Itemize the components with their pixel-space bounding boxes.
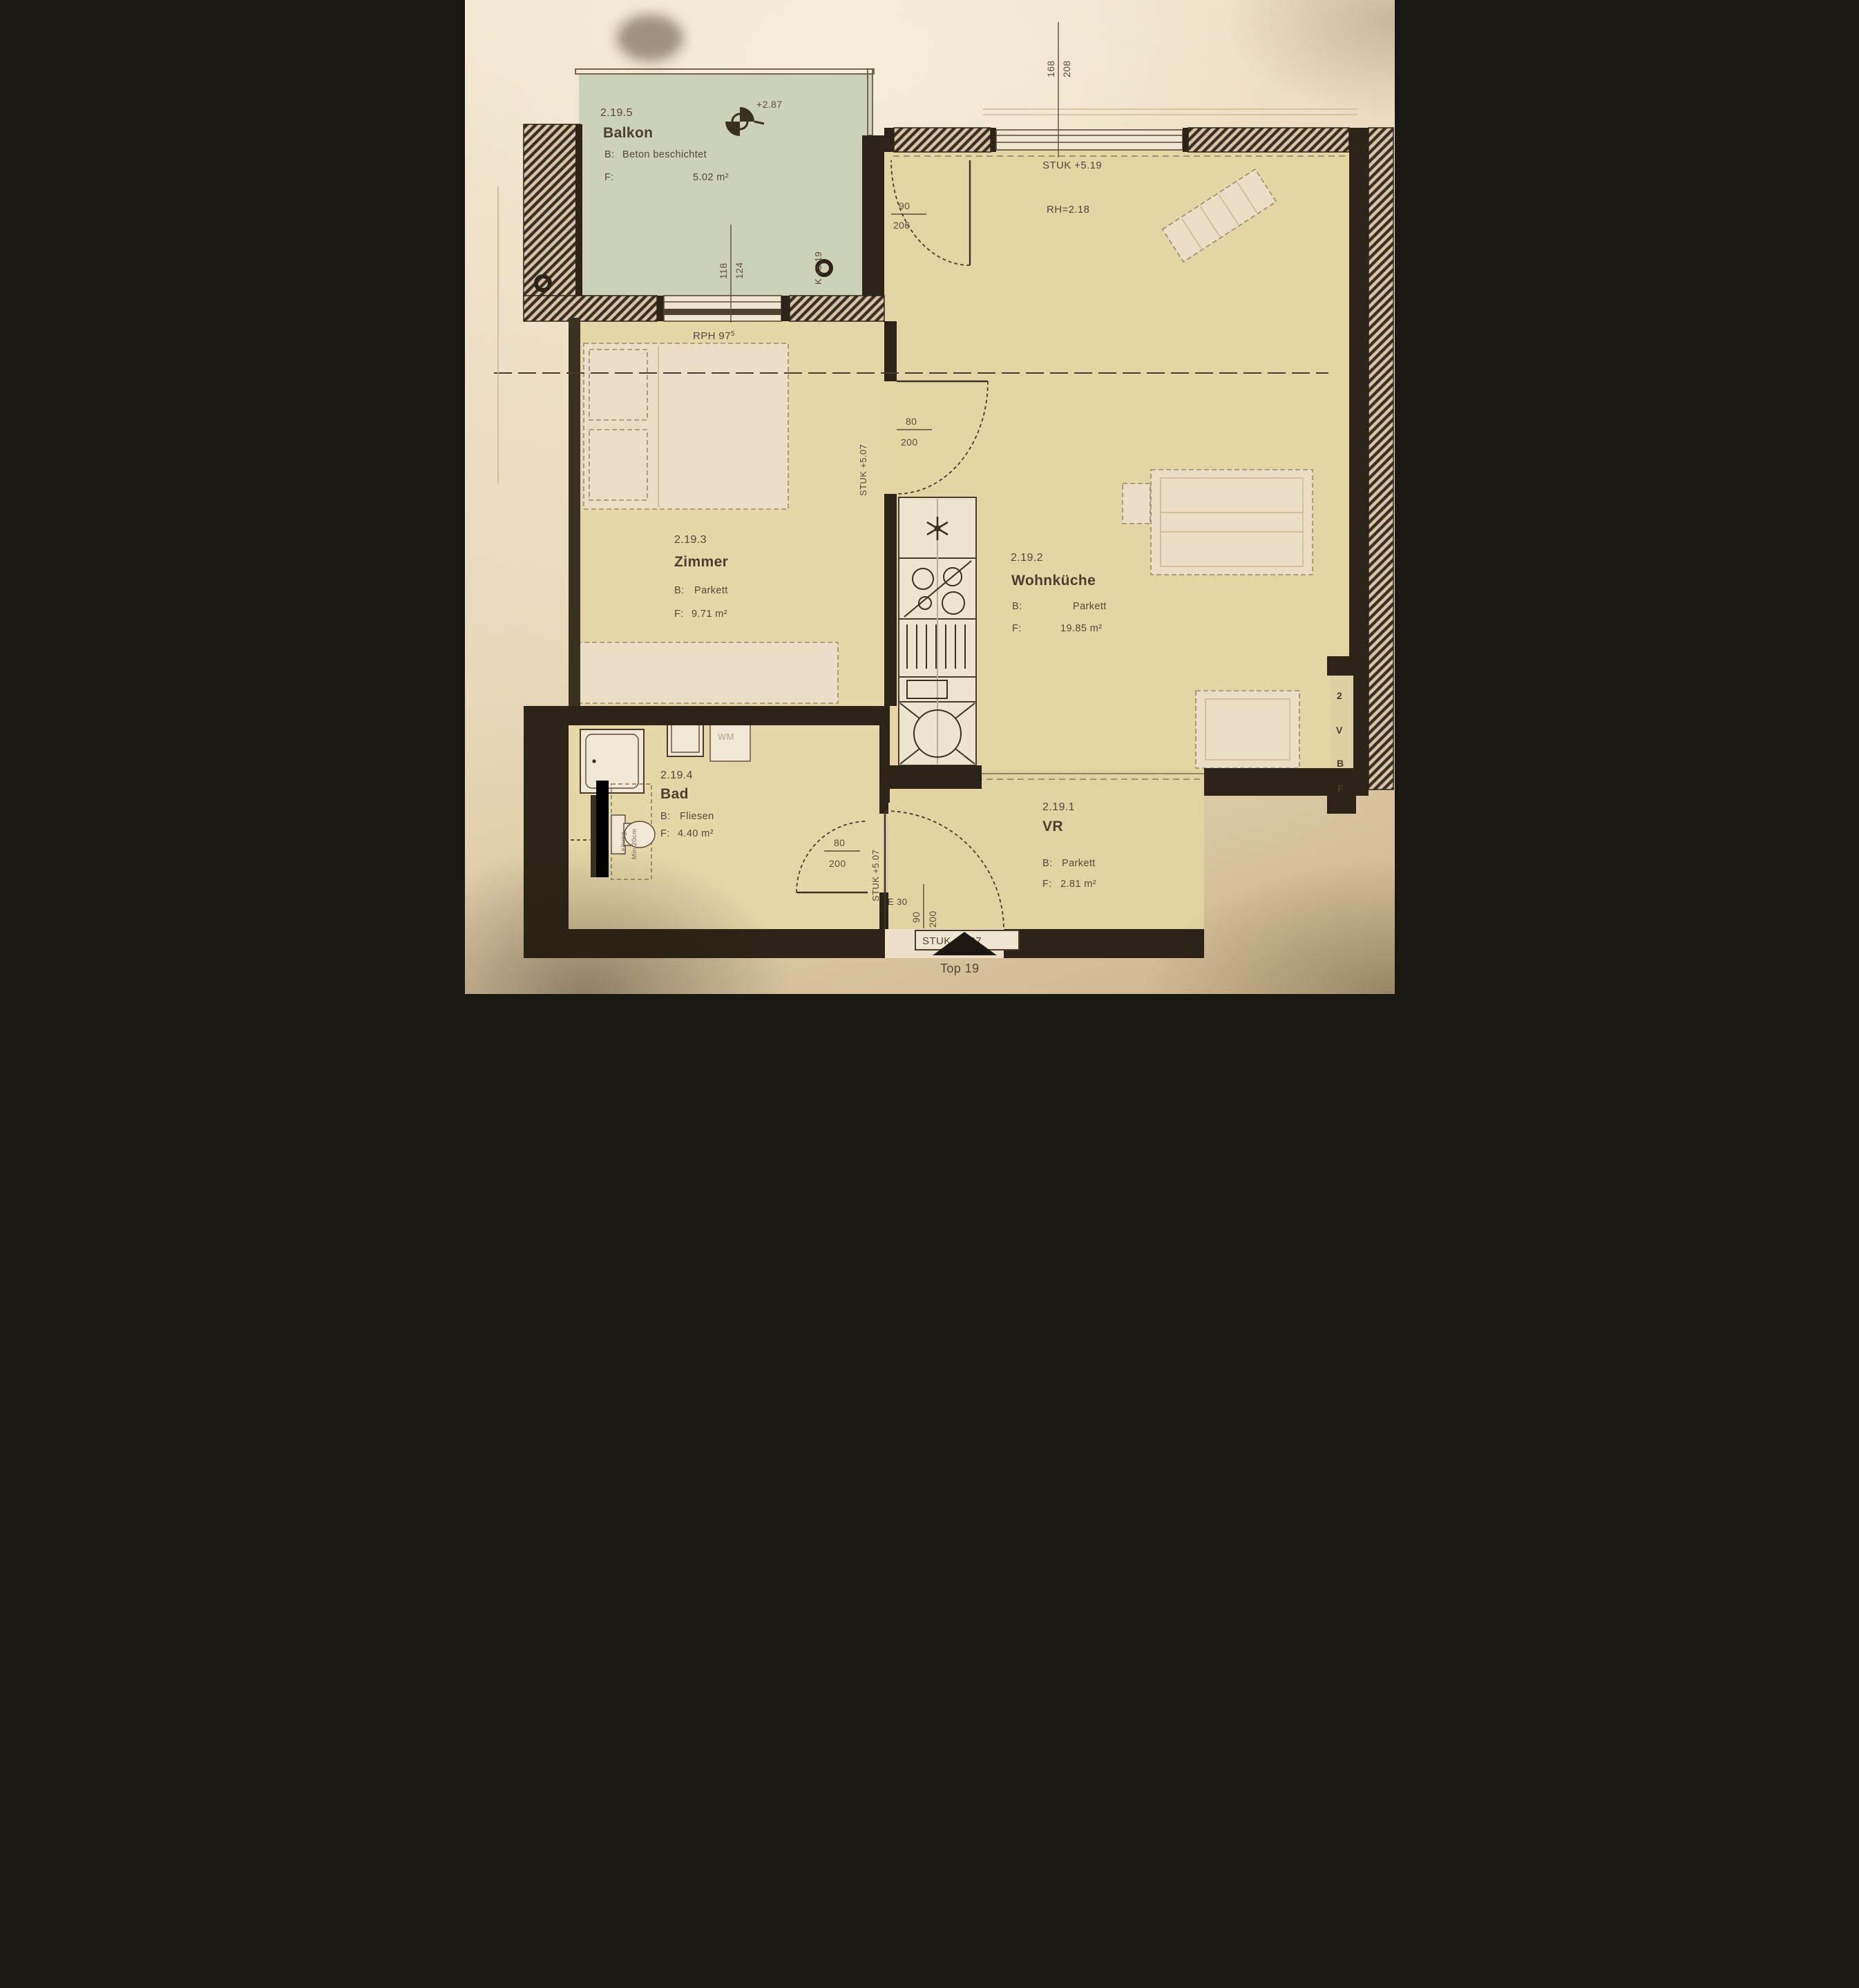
insulation-strip bbox=[596, 781, 609, 877]
dim-width: 168 bbox=[1045, 60, 1056, 77]
svg-text:2: 2 bbox=[1337, 690, 1342, 701]
dim-height: 200 bbox=[901, 437, 918, 448]
floor-label: B: bbox=[1012, 601, 1022, 612]
fire-rating-label: E 30 bbox=[888, 897, 907, 907]
room-number: 2.19.4 bbox=[660, 770, 693, 781]
room-number: 2.19.3 bbox=[674, 534, 707, 546]
area-label: F: bbox=[660, 828, 670, 839]
floor-label: B: bbox=[674, 585, 685, 596]
balcony-railing bbox=[575, 69, 874, 74]
armchair bbox=[1196, 691, 1299, 768]
dim-width: 90 bbox=[899, 200, 910, 211]
rph-label: RPH 975 bbox=[693, 330, 735, 342]
floor-label: B: bbox=[660, 811, 671, 822]
area-value: 19.85 m² bbox=[1060, 623, 1102, 634]
dim-height: 208 bbox=[1061, 60, 1072, 77]
chair bbox=[1123, 484, 1150, 524]
dim-width: 80 bbox=[834, 837, 845, 848]
floor-value: Parkett bbox=[1062, 858, 1096, 869]
pillow bbox=[589, 350, 647, 420]
area-value: 9.71 m² bbox=[692, 609, 727, 620]
bed bbox=[584, 343, 788, 509]
svg-text:F: F bbox=[1337, 783, 1344, 794]
washing-machine-label: WM bbox=[718, 732, 734, 742]
room-number: 2.19.5 bbox=[600, 107, 633, 119]
room-number: 2.19.1 bbox=[1042, 801, 1075, 813]
room-name: VR bbox=[1042, 819, 1063, 834]
area-value: 4.40 m² bbox=[678, 828, 714, 839]
stuk-bad-door-label: STUK +5.07 bbox=[870, 850, 881, 901]
balcony-window bbox=[664, 296, 781, 321]
level-mark: +2.87 bbox=[756, 99, 782, 110]
wc-note-2: Min 20cm bbox=[631, 829, 638, 859]
pillow bbox=[589, 430, 647, 500]
room-name: Bad bbox=[660, 786, 689, 802]
photo-shadow-blob bbox=[617, 15, 683, 61]
dim-height: 124 bbox=[734, 262, 745, 279]
room-height-label: RH=2.18 bbox=[1047, 204, 1089, 216]
entrance-label: Top 19 bbox=[940, 962, 979, 975]
dim-height: 206 bbox=[893, 220, 911, 231]
room-name: Wohnküche bbox=[1011, 573, 1096, 589]
svg-text:V: V bbox=[1336, 725, 1343, 736]
wc-note-1: Leitung bbox=[620, 832, 627, 855]
area-label: F: bbox=[1012, 623, 1022, 634]
desk bbox=[577, 642, 838, 703]
vr-floor bbox=[888, 767, 1204, 930]
dim-width: 80 bbox=[906, 416, 917, 427]
main-window bbox=[996, 130, 1183, 150]
dim-width: 118 bbox=[718, 262, 729, 279]
area-value: 2.81 m² bbox=[1060, 879, 1096, 890]
dim-width: 90 bbox=[911, 912, 922, 923]
area-label: F: bbox=[674, 609, 684, 620]
floor-label: B: bbox=[1042, 858, 1053, 869]
dim-height: 200 bbox=[927, 910, 938, 928]
floor-value: Parkett bbox=[1073, 601, 1107, 612]
area-label: F: bbox=[1042, 879, 1052, 890]
stuk-window-label: STUK +5.19 bbox=[1042, 160, 1102, 171]
room-name: Zimmer bbox=[674, 554, 728, 570]
floor-value: Fliesen bbox=[680, 811, 714, 822]
kitchen-counter bbox=[899, 497, 976, 765]
k-level-label: K +5.19 bbox=[813, 251, 823, 285]
floor-plan: WM Leitung Min 20cm bbox=[465, 0, 1395, 994]
shower bbox=[580, 729, 644, 793]
room-number: 2.19.2 bbox=[1011, 552, 1043, 564]
area-value: 5.02 m² bbox=[693, 172, 729, 183]
dining-table bbox=[1123, 470, 1313, 575]
dim-height: 200 bbox=[829, 858, 846, 869]
floor-label: B: bbox=[604, 149, 615, 160]
room-name: Balkon bbox=[603, 125, 653, 141]
area-label: F: bbox=[604, 172, 614, 183]
floor-value: Beton beschichtet bbox=[622, 149, 707, 160]
stuk-zimmer-door-label: STUK +5.07 bbox=[858, 444, 868, 496]
floor-plan-photo: WM Leitung Min 20cm bbox=[465, 0, 1395, 994]
floor-value: Parkett bbox=[694, 585, 728, 596]
svg-text:B: B bbox=[1337, 758, 1344, 769]
